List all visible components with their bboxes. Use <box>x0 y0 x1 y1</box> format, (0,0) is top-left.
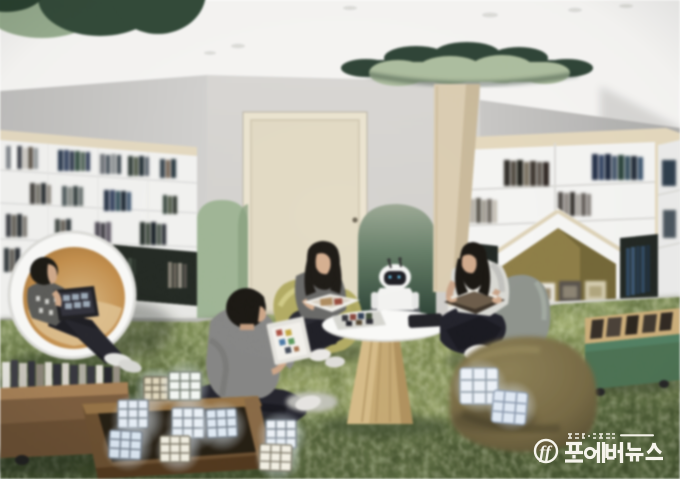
svg-text:ff: ff <box>539 442 553 462</box>
